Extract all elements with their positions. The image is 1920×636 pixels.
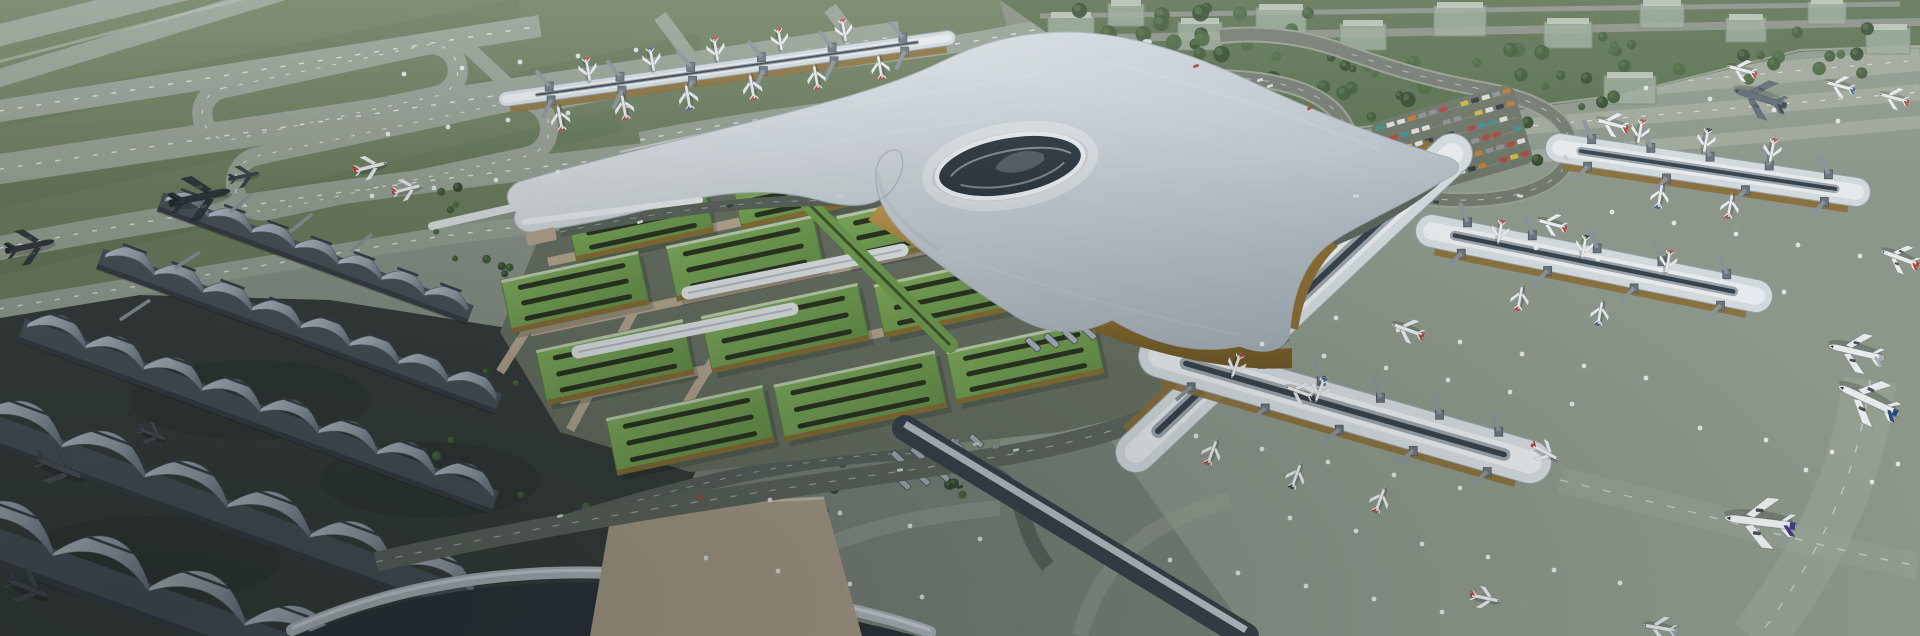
cool-tint [0, 0, 1920, 636]
render-canvas [0, 0, 1920, 636]
airport-aerial-render [0, 0, 1920, 636]
